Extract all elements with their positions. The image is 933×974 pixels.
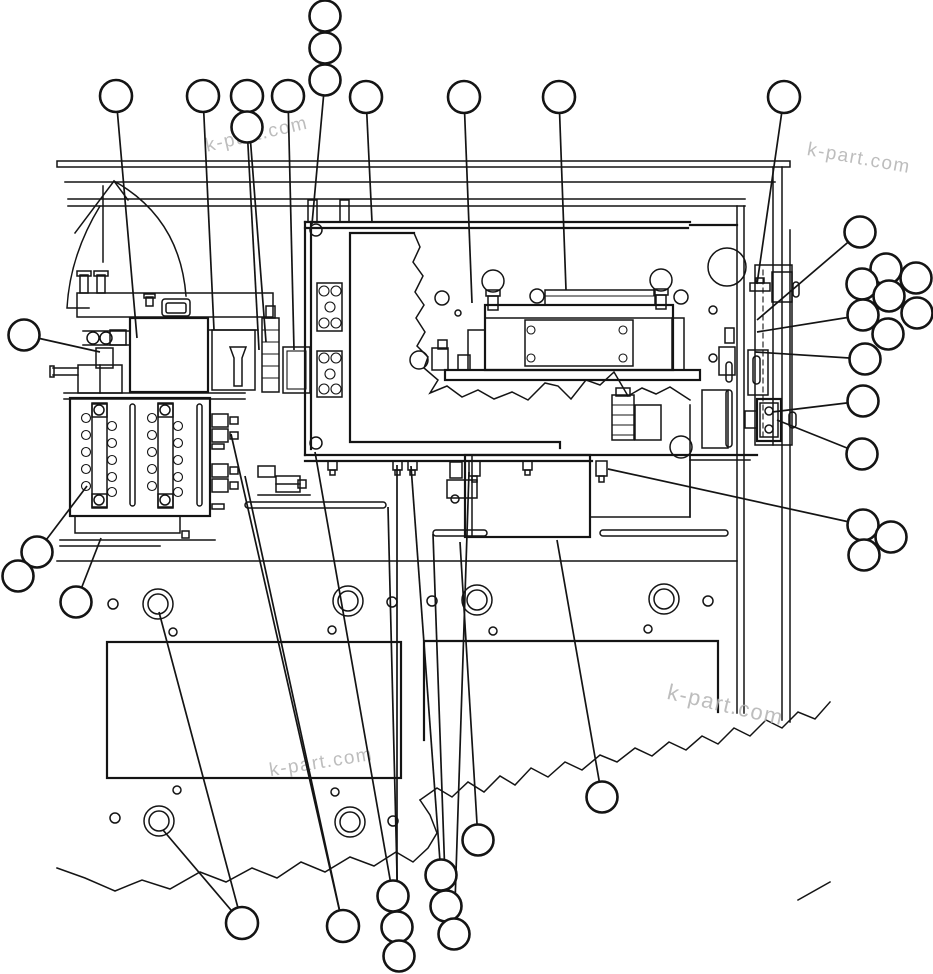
callout-balloon[interactable] [9,320,40,351]
callout-balloon[interactable] [448,81,480,113]
callout-balloon[interactable] [310,1,341,32]
callout-balloon[interactable] [873,319,904,350]
terminal-bolts [82,414,183,497]
callout-balloon[interactable] [439,919,470,950]
callout-balloon[interactable] [3,561,34,592]
callout-balloon[interactable] [848,386,879,417]
leader-line [411,466,441,875]
callout-balloon[interactable] [232,112,263,143]
leader-line [312,80,325,224]
leader-line [366,97,372,222]
parts-diagram-page: k-part.comk-part.comk-part.comk-part.com [0,0,933,974]
lower-hanging-boxes [57,306,750,561]
leader-line [557,540,602,797]
callout-balloon[interactable] [327,910,359,942]
callout-balloon[interactable] [849,540,880,571]
leader-line [159,612,242,923]
callout-balloon[interactable] [378,881,409,912]
callout-balloon[interactable] [543,81,575,113]
callout-balloon[interactable] [350,81,382,113]
callout-balloon[interactable] [874,281,905,312]
callout-balloon[interactable] [187,80,219,112]
callout-balloon[interactable] [845,217,876,248]
callout-balloon[interactable] [61,587,92,618]
callout-balloon[interactable] [310,33,341,64]
leader-line [454,472,469,934]
left-door-arc [67,181,186,308]
leader-line [116,96,137,338]
left-assembly [50,271,310,399]
callout-balloon[interactable] [587,782,618,813]
callout-balloon[interactable] [226,907,258,939]
diagram-canvas: k-part.comk-part.comk-part.comk-part.com [0,0,933,974]
watermark-text: k-part.com [268,744,375,781]
callout-balloon[interactable] [876,522,907,553]
machine-drawing [50,161,830,900]
leader-line [757,97,784,284]
callout-balloon[interactable] [901,263,932,294]
callout-balloon[interactable] [463,825,494,856]
leader-line [559,97,566,290]
callout-balloon[interactable] [310,65,341,96]
callout-balloon[interactable] [902,298,933,329]
side-connectors [212,414,238,509]
leader-line [245,476,343,926]
leader-line [464,97,472,303]
watermarks: k-part.comk-part.comk-part.comk-part.com [203,113,912,782]
watermark-text: k-part.com [665,679,786,730]
callout-balloon[interactable] [231,80,263,112]
watermark-text: k-part.com [806,139,913,178]
callout-balloon[interactable] [847,439,878,470]
leader-line [315,452,393,896]
callout-balloon[interactable] [768,81,800,113]
callout-balloon[interactable] [848,510,879,541]
callout-balloons [3,1,933,972]
callout-balloon[interactable] [850,344,881,375]
callout-balloon[interactable] [100,80,132,112]
callout-balloon[interactable] [382,912,413,943]
terminal-strip-panel [60,398,238,546]
callout-balloon[interactable] [384,941,415,972]
callout-balloon[interactable] [426,860,457,891]
right-rail-column [719,265,799,445]
leader-line [203,96,214,330]
callout-balloon[interactable] [272,80,304,112]
callout-balloon[interactable] [431,891,462,922]
